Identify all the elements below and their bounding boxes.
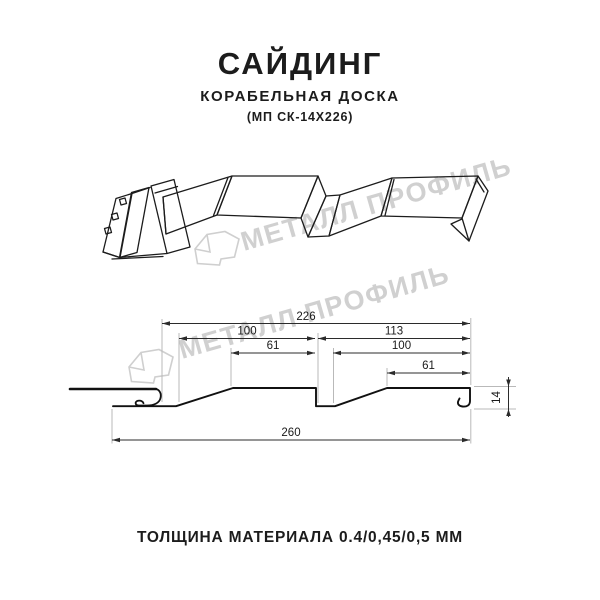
lock-curl: [136, 389, 161, 406]
dimension-lines: [112, 324, 509, 441]
metal-profile-logo-icon: [129, 350, 173, 384]
dim-label-100-left: 100: [237, 326, 256, 338]
dim-label-100-right: 100: [392, 340, 411, 352]
dim-label-14: 14: [491, 391, 503, 404]
profile-section: [70, 388, 470, 407]
extension-lines: [112, 318, 516, 444]
dim-label-61-left: 61: [267, 340, 280, 352]
metal-profile-logo-icon: [195, 232, 239, 266]
dim-label-113: 113: [385, 326, 403, 338]
material-thickness-note: ТОЛЩИНА МАТЕРИАЛА 0.4/0,45/0,5 ММ: [0, 529, 600, 547]
dim-label-260: 260: [281, 427, 300, 439]
dim-label-226: 226: [296, 311, 315, 323]
dim-label-61-right: 61: [422, 360, 435, 372]
panel-profile: [113, 388, 470, 407]
watermark-lower: МЕТАЛЛ ПРОФИЛЬ: [129, 259, 453, 383]
technical-drawing: МЕТАЛЛ ПРОФИЛЬ: [0, 0, 600, 600]
dimension-arrows: [112, 321, 511, 442]
page: САЙДИНГ КОРАБЕЛЬНАЯ ДОСКА (МП СК-14Х226)…: [0, 0, 600, 600]
